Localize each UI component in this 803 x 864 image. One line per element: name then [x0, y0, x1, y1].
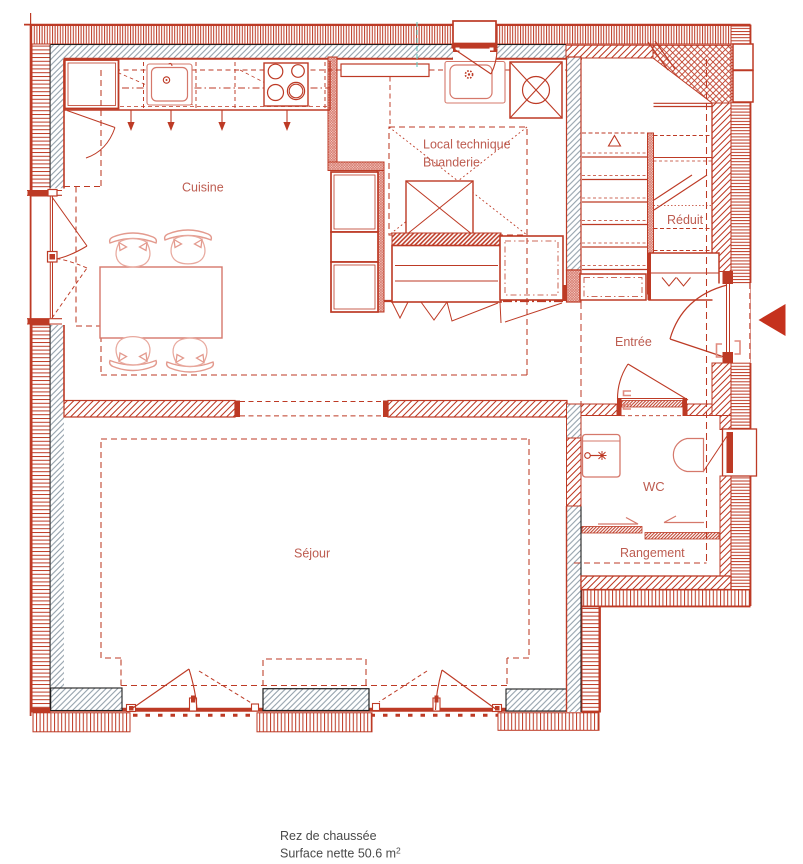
svg-text:Rangement: Rangement — [620, 546, 685, 560]
svg-text:Séjour: Séjour — [294, 547, 330, 561]
svg-text:Buanderie: Buanderie — [423, 156, 480, 170]
svg-text:Réduit: Réduit — [667, 213, 704, 227]
svg-text:Cuisine: Cuisine — [182, 181, 224, 195]
svg-text:WC: WC — [643, 479, 665, 494]
svg-text:Surface nette 50.6 m2: Surface nette 50.6 m2 — [280, 846, 401, 861]
svg-text:Rez de chaussée: Rez de chaussée — [280, 829, 377, 843]
svg-text:Entrée: Entrée — [615, 335, 652, 349]
svg-text:Local technique: Local technique — [423, 138, 511, 152]
